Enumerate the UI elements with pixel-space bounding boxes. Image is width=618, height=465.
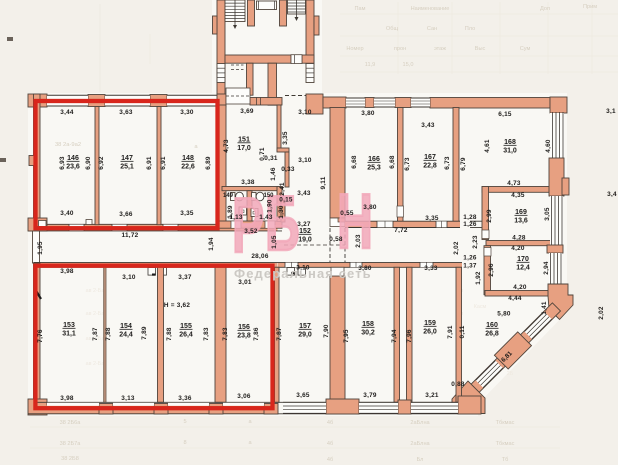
svg-text:Сан: Сан <box>427 26 437 32</box>
svg-text:3,69: 3,69 <box>240 108 254 115</box>
svg-text:6,90: 6,90 <box>85 156 92 170</box>
svg-text:2,02: 2,02 <box>453 241 460 255</box>
svg-text:3,35: 3,35 <box>282 131 289 145</box>
svg-text:2,96: 2,96 <box>488 263 495 277</box>
svg-text:3,98: 3,98 <box>60 268 74 275</box>
svg-text:31,0: 31,0 <box>503 147 517 154</box>
svg-text:2,94: 2,94 <box>543 261 550 275</box>
svg-text:149: 149 <box>223 193 234 199</box>
svg-text:1,46: 1,46 <box>270 167 277 181</box>
svg-text:3,43: 3,43 <box>297 190 311 197</box>
svg-text:7,83: 7,83 <box>222 327 229 341</box>
svg-text:25,3: 25,3 <box>367 164 381 171</box>
svg-text:1,43: 1,43 <box>259 214 273 221</box>
svg-text:6,91: 6,91 <box>160 156 167 170</box>
svg-text:11,72: 11,72 <box>122 232 139 239</box>
svg-text:3,10: 3,10 <box>298 157 312 164</box>
svg-text:4б: 4б <box>327 420 333 426</box>
svg-text:3,27: 3,27 <box>297 221 311 228</box>
svg-text:3,1: 3,1 <box>606 108 616 115</box>
svg-text:13,6: 13,6 <box>514 217 528 224</box>
svg-text:1,37: 1,37 <box>463 263 477 270</box>
svg-text:1,95: 1,95 <box>37 241 44 255</box>
svg-text:4,73: 4,73 <box>507 180 521 187</box>
svg-text:2аБлна: 2аБлна <box>410 441 430 447</box>
svg-text:Доп: Доп <box>540 6 550 12</box>
svg-text:7,87: 7,87 <box>92 327 99 341</box>
svg-text:3,33: 3,33 <box>424 265 438 272</box>
svg-text:7,96: 7,96 <box>406 329 413 343</box>
svg-text:3,35: 3,35 <box>180 210 194 217</box>
svg-text:этаж: этаж <box>434 46 446 52</box>
svg-text:7,88: 7,88 <box>166 327 173 341</box>
svg-text:Бл: Бл <box>417 457 424 463</box>
svg-text:6,68: 6,68 <box>351 155 358 169</box>
svg-text:29,0: 29,0 <box>298 331 312 338</box>
svg-text:0,58: 0,58 <box>329 236 343 243</box>
svg-text:1,89: 1,89 <box>227 205 234 219</box>
svg-text:3,80: 3,80 <box>363 204 377 211</box>
svg-text:6,92: 6,92 <box>98 156 105 170</box>
svg-text:Прим: Прим <box>583 4 597 10</box>
svg-text:30,2: 30,2 <box>361 329 375 336</box>
svg-text:3,38: 3,38 <box>241 179 255 186</box>
svg-text:Касм: Касм <box>474 304 487 310</box>
svg-text:Тб: Тб <box>502 457 509 463</box>
svg-text:3,10: 3,10 <box>298 109 312 116</box>
svg-text:2,99: 2,99 <box>486 209 493 223</box>
svg-text:Общ: Общ <box>386 26 399 32</box>
svg-text:4,61: 4,61 <box>484 139 491 153</box>
svg-text:23,8: 23,8 <box>237 332 251 339</box>
svg-text:0,15: 0,15 <box>279 197 293 204</box>
svg-text:6,68: 6,68 <box>389 155 396 169</box>
svg-text:15,0: 15,0 <box>403 62 414 68</box>
svg-text:1,28: 1,28 <box>463 214 477 221</box>
svg-text:4,73: 4,73 <box>223 139 230 153</box>
svg-text:Тбкмас: Тбкмас <box>496 441 515 447</box>
svg-text:28,06: 28,06 <box>251 253 268 260</box>
svg-text:26,0: 26,0 <box>423 328 437 335</box>
svg-text:0,71: 0,71 <box>259 147 266 161</box>
svg-text:9,11: 9,11 <box>320 176 327 189</box>
svg-text:7,86: 7,86 <box>253 327 260 341</box>
svg-text:1,26: 1,26 <box>463 221 477 228</box>
svg-text:8: 8 <box>183 440 186 446</box>
svg-text:3,05: 3,05 <box>544 207 551 221</box>
svg-text:Номер: Номер <box>346 46 363 52</box>
svg-text:6,73: 6,73 <box>444 156 451 170</box>
svg-text:5: 5 <box>183 419 186 425</box>
svg-text:3,21: 3,21 <box>425 392 439 399</box>
svg-text:3,63: 3,63 <box>119 109 133 116</box>
svg-text:4,35: 4,35 <box>511 192 525 199</box>
svg-text:3,30: 3,30 <box>180 109 194 116</box>
svg-text:31,1: 31,1 <box>62 330 76 337</box>
svg-text:6,73: 6,73 <box>404 157 411 171</box>
svg-text:3,37: 3,37 <box>178 274 192 281</box>
svg-text:7,94: 7,94 <box>391 329 398 343</box>
svg-text:6,89: 6,89 <box>205 156 212 170</box>
svg-text:1,41: 1,41 <box>541 301 548 315</box>
svg-text:Наименование: Наименование <box>411 6 450 12</box>
svg-text:5,80: 5,80 <box>497 311 511 318</box>
svg-text:0,11: 0,11 <box>459 325 466 338</box>
svg-text:H = 3,62: H = 3,62 <box>164 302 191 309</box>
svg-text:ав 2-Ба: ав 2-Ба <box>86 361 105 367</box>
svg-text:2аБлна: 2аБлна <box>410 420 430 426</box>
svg-text:17,0: 17,0 <box>237 145 251 152</box>
svg-text:3,35: 3,35 <box>425 215 439 222</box>
svg-text:38 2а-9а2: 38 2а-9а2 <box>55 142 81 148</box>
svg-text:22,8: 22,8 <box>423 162 437 169</box>
svg-text:6,93: 6,93 <box>59 156 66 170</box>
svg-text:1,05: 1,05 <box>271 235 278 249</box>
svg-text:3,66: 3,66 <box>119 211 133 218</box>
svg-text:3,4: 3,4 <box>607 191 617 198</box>
svg-text:0,33: 0,33 <box>281 166 295 173</box>
svg-text:Пам: Пам <box>355 6 366 12</box>
svg-text:4,28: 4,28 <box>512 235 526 242</box>
svg-text:7,88: 7,88 <box>105 327 112 341</box>
svg-text:22,6: 22,6 <box>181 163 195 170</box>
svg-text:3,01: 3,01 <box>238 279 252 286</box>
svg-text:прон: прон <box>394 46 406 52</box>
svg-text:2,23: 2,23 <box>472 235 479 249</box>
svg-text:0,88: 0,88 <box>451 381 465 388</box>
svg-text:Пло: Пло <box>465 26 475 32</box>
svg-text:3,79: 3,79 <box>363 392 377 399</box>
svg-text:7,90: 7,90 <box>323 324 330 338</box>
svg-text:3,98: 3,98 <box>60 395 74 402</box>
svg-text:4б: 4б <box>327 441 333 447</box>
svg-text:7,89: 7,89 <box>141 326 148 340</box>
svg-text:0,55: 0,55 <box>340 210 354 217</box>
svg-text:4,20: 4,20 <box>513 284 527 291</box>
svg-text:3,06: 3,06 <box>237 393 251 400</box>
svg-text:1,26: 1,26 <box>463 255 477 262</box>
svg-text:2,02: 2,02 <box>598 306 605 320</box>
svg-text:7,87: 7,87 <box>276 327 283 341</box>
svg-text:38 2Б6а: 38 2Б6а <box>60 420 82 426</box>
svg-text:1,94: 1,94 <box>208 237 215 251</box>
svg-text:38 2Б7а: 38 2Б7а <box>60 441 82 447</box>
svg-text:26,8: 26,8 <box>485 330 499 337</box>
svg-text:7,76: 7,76 <box>37 329 44 343</box>
svg-text:3,10: 3,10 <box>122 274 136 281</box>
svg-text:7,91: 7,91 <box>447 325 454 339</box>
svg-text:ав 2-Ба: ав 2-Ба <box>86 288 105 294</box>
svg-text:3,36: 3,36 <box>178 395 192 402</box>
svg-text:2,41: 2,41 <box>279 182 286 196</box>
svg-text:6,79: 6,79 <box>460 157 467 171</box>
svg-text:Сум: Сум <box>520 46 531 52</box>
svg-text:Выс: Выс <box>475 46 486 52</box>
svg-text:6,91: 6,91 <box>146 156 153 170</box>
svg-text:38 2Б8: 38 2Б8 <box>61 456 79 462</box>
svg-text:150: 150 <box>263 193 274 199</box>
svg-text:6,15: 6,15 <box>498 111 512 118</box>
svg-text:4,44: 4,44 <box>508 295 522 302</box>
svg-text:3,65: 3,65 <box>296 392 310 399</box>
svg-text:1,90: 1,90 <box>267 199 274 213</box>
svg-text:7,83: 7,83 <box>203 327 210 341</box>
svg-text:3,13: 3,13 <box>121 395 135 402</box>
svg-text:0,31: 0,31 <box>264 155 278 162</box>
svg-text:25,1: 25,1 <box>120 163 134 170</box>
svg-text:1,92: 1,92 <box>475 271 482 285</box>
svg-text:1,30: 1,30 <box>278 205 285 219</box>
svg-text:3,40: 3,40 <box>60 210 74 217</box>
svg-text:4,60: 4,60 <box>545 139 552 153</box>
svg-text:2Б: 2Б <box>507 371 514 377</box>
svg-text:11,9: 11,9 <box>365 62 375 68</box>
svg-text:2,03: 2,03 <box>355 234 362 248</box>
svg-text:3,43: 3,43 <box>421 122 435 129</box>
svg-text:3,10: 3,10 <box>296 265 310 272</box>
svg-text:3,80: 3,80 <box>361 110 375 117</box>
svg-text:4б: 4б <box>327 457 333 463</box>
svg-text:23,6: 23,6 <box>66 163 80 170</box>
svg-text:3,52: 3,52 <box>244 228 258 235</box>
svg-text:Тбкмас: Тбкмас <box>496 420 515 426</box>
svg-text:19,0: 19,0 <box>298 236 312 243</box>
svg-text:24,4: 24,4 <box>119 331 133 338</box>
svg-text:26,4: 26,4 <box>179 331 193 338</box>
svg-text:ав 2-Ба: ав 2-Ба <box>86 311 105 317</box>
svg-text:7,72: 7,72 <box>394 227 408 234</box>
svg-text:3,44: 3,44 <box>60 109 74 116</box>
svg-text:12,4: 12,4 <box>516 264 530 271</box>
svg-text:Н: Н <box>337 178 373 265</box>
svg-text:4,20: 4,20 <box>511 245 525 252</box>
svg-text:3,80: 3,80 <box>358 265 372 272</box>
svg-text:7,95: 7,95 <box>343 329 350 343</box>
